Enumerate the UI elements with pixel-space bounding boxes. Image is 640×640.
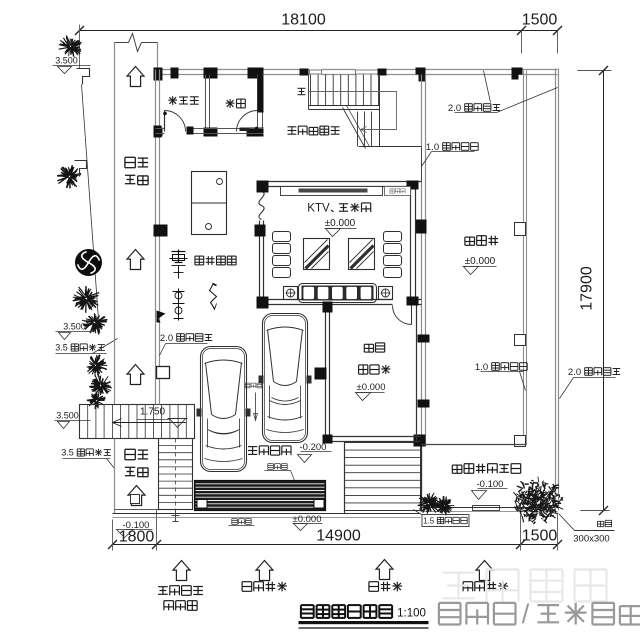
svg-text:14900: 14900 [316,528,361,545]
svg-text:1500: 1500 [522,528,558,545]
svg-text:±0.000: ±0.000 [325,218,356,229]
svg-text:18100: 18100 [281,12,326,29]
svg-text:2.0: 2.0 [160,333,173,344]
svg-text:±0.000: ±0.000 [357,382,386,393]
svg-text:17900: 17900 [579,266,596,311]
svg-text:1.750: 1.750 [140,407,165,418]
svg-text:1500: 1500 [522,12,558,29]
svg-text:2.0: 2.0 [568,367,581,378]
svg-text:3.500: 3.500 [56,411,79,421]
svg-text:KTV: KTV [307,203,330,215]
svg-text:300x300: 300x300 [573,534,609,545]
svg-text:1.5: 1.5 [423,516,435,525]
svg-text:/: / [522,599,530,629]
svg-text:3.500: 3.500 [55,56,78,66]
svg-text:±0.000: ±0.000 [465,256,496,267]
svg-text:3.500: 3.500 [63,322,86,332]
svg-text:1:100: 1:100 [397,608,426,620]
svg-text:3.5: 3.5 [61,448,74,458]
svg-text:3.5: 3.5 [55,343,68,353]
